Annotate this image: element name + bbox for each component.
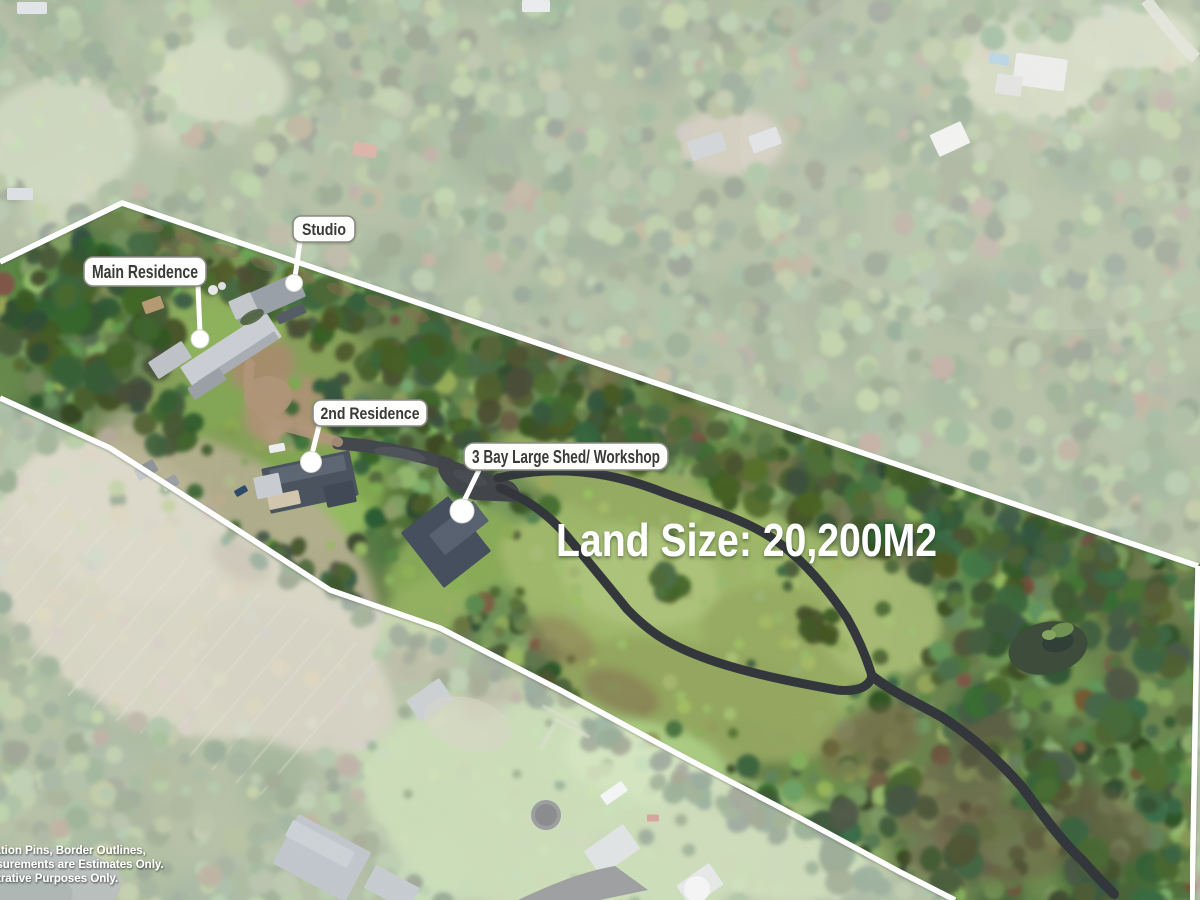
svg-text:Land Size: 20,200M2: Land Size: 20,200M2 <box>556 514 937 566</box>
svg-text:Location Pins, Border Outlines: Location Pins, Border Outlines, <box>0 845 146 857</box>
svg-text:2nd Residence: 2nd Residence <box>321 404 420 423</box>
svg-text:Measurements are Estimates Onl: Measurements are Estimates Only. <box>0 859 164 871</box>
svg-text:Illustrative Purposes Only.: Illustrative Purposes Only. <box>0 873 118 885</box>
svg-text:Main Residence: Main Residence <box>92 262 198 282</box>
svg-text:Studio: Studio <box>302 220 346 239</box>
svg-text:3 Bay Large Shed/ Workshop: 3 Bay Large Shed/ Workshop <box>472 447 660 467</box>
